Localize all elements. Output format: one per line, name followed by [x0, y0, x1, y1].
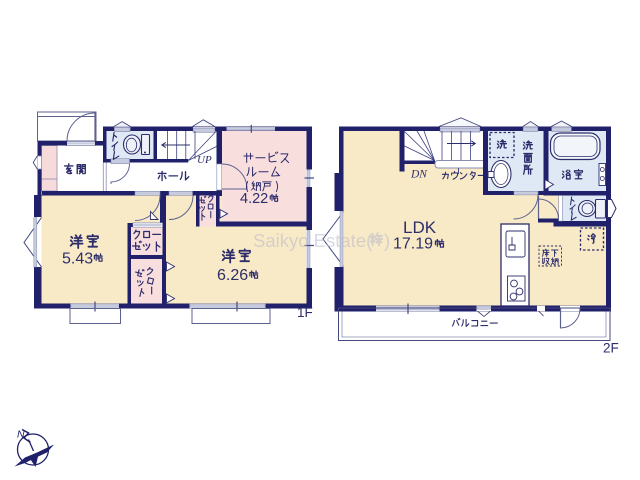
svg-text:1F: 1F — [297, 305, 313, 320]
svg-text:4.22: 4.22 — [240, 191, 268, 207]
svg-text:5.43: 5.43 — [62, 251, 93, 268]
svg-text:N: N — [17, 429, 25, 441]
svg-text:Saikyo Estate(: Saikyo Estate( — [253, 230, 373, 251]
svg-text:UP: UP — [197, 154, 212, 166]
svg-text:6.26: 6.26 — [217, 267, 248, 284]
svg-text:): ) — [384, 230, 390, 251]
svg-text:2F: 2F — [603, 341, 619, 356]
svg-text:DN: DN — [410, 169, 428, 181]
svg-text:17.19: 17.19 — [393, 236, 433, 253]
svg-text:LDK: LDK — [403, 218, 437, 237]
